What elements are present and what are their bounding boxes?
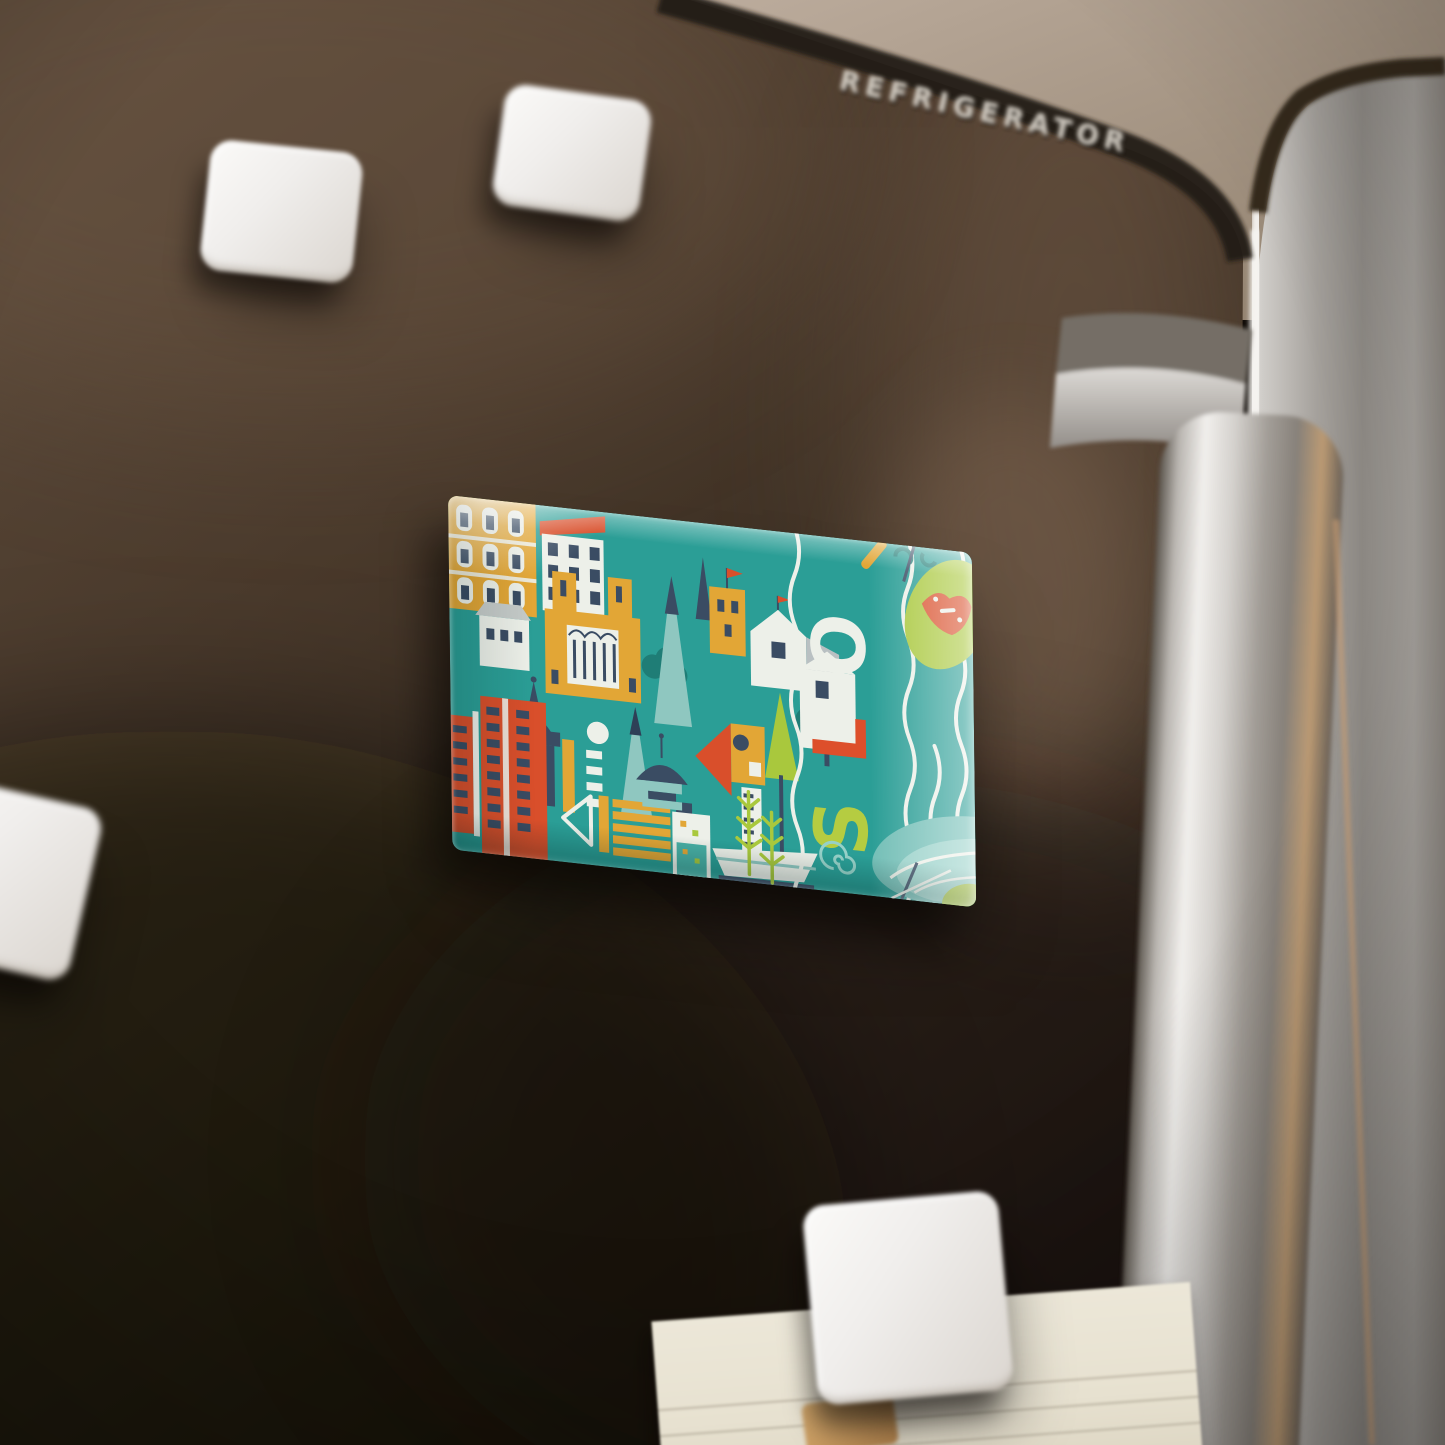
white-square-magnet-4 [802, 1190, 1015, 1406]
letter-o2: O [796, 603, 883, 682]
note-rule-line [662, 1422, 1201, 1445]
oslo-artwork: O S L O [448, 495, 976, 907]
note-rule-line [660, 1396, 1199, 1438]
small-house [475, 601, 531, 672]
aquarium-box [672, 812, 711, 879]
white-square-magnet-1 [199, 138, 365, 284]
mustard-bar [562, 739, 575, 813]
oslo-city-magnet: O S L O [448, 495, 976, 907]
letter-l: L [797, 704, 884, 767]
opera-house-facade [448, 495, 537, 617]
white-square-magnet-2 [490, 82, 654, 223]
fridge-photo-scene: REFRIGERATOR REFRIGERATOR [0, 0, 1445, 1445]
letter-s: S [798, 790, 885, 859]
